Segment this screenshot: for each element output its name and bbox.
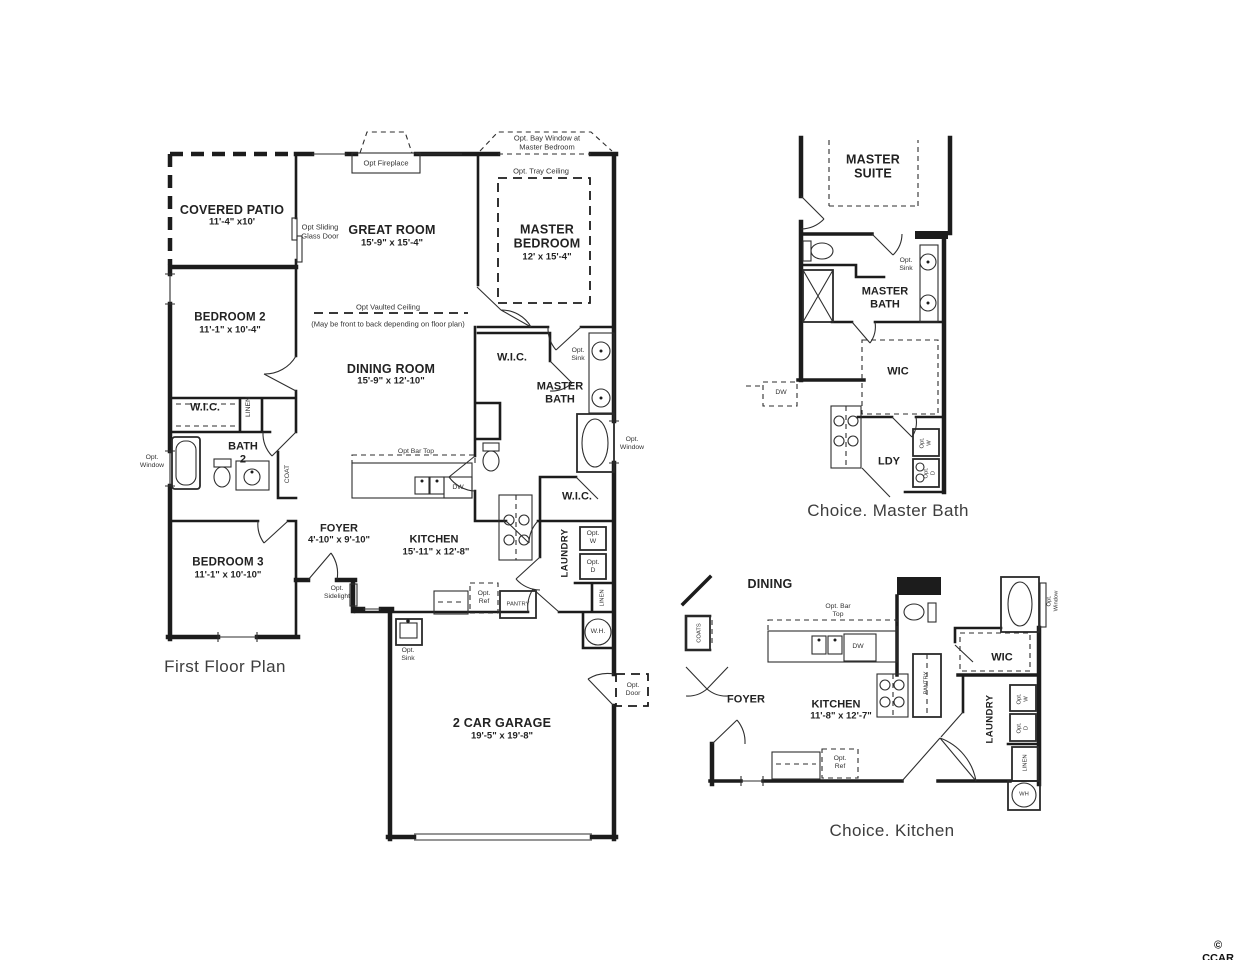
pantry-label: PANTRY <box>507 602 530 609</box>
dims-great-room: 15'-9" x 15'-4" <box>361 239 423 250</box>
counter-choice-k <box>768 620 897 662</box>
opt-fireplace-label: Opt Fireplace <box>363 160 408 169</box>
toilet-choice-mb <box>803 241 833 261</box>
room-label-wic-master2: W.I.C. <box>562 491 592 504</box>
bathtub-bath2 <box>172 437 200 489</box>
dw-label-ck: DW <box>852 643 863 651</box>
bay-window-note: Opt. Bay Window at Master Bedroom <box>514 134 580 151</box>
linen-laundry-label: LINEN <box>600 589 607 606</box>
dims-garage: 19'-5" x 19'-8" <box>471 732 533 743</box>
opt-sink-label-bath: Opt. Sink <box>571 347 584 363</box>
dw-label: DW <box>452 484 463 492</box>
laundry-label-ck: LAUNDRY <box>986 695 997 744</box>
vaulted-note: (May be front to back depending on floor… <box>311 321 464 330</box>
dims-bedroom-2: 11'-1" x 10'-4" <box>199 326 261 337</box>
stove-choice-k <box>877 674 908 717</box>
opt-bar-top-label-ck: Opt. Bar Top <box>825 603 850 619</box>
room-label-kitchen-ck: KITCHEN <box>812 699 861 712</box>
opt-window-label-master: Opt. Window <box>620 436 644 452</box>
cabinet-choice-k <box>772 752 820 779</box>
room-label-wic-ck: WIC <box>991 652 1012 665</box>
room-label-wic-cmb: WIC <box>887 366 908 379</box>
room-label-bath-2: BATH 2 <box>228 440 258 465</box>
linen-hall-label: LINEN <box>245 397 253 417</box>
stove <box>499 495 532 560</box>
room-label-dining-ck: DINING <box>748 577 793 591</box>
cabinet <box>434 591 468 614</box>
water-heater-label-ck: WH <box>1019 792 1029 799</box>
coats-label: COATS <box>697 623 704 643</box>
opt-washer-label-cmb: Opt. W <box>919 438 932 449</box>
room-label-dining-room: DINING ROOM <box>347 362 435 376</box>
room-label-foyer: FOYER <box>320 523 358 536</box>
room-label-kitchen: KITCHEN <box>410 534 459 547</box>
opt-dryer-label-cmb: Opt. D <box>923 468 936 479</box>
opt-ref-label: Opt. Ref <box>478 590 491 606</box>
opt-sink-label-garage: Opt. Sink <box>401 647 414 663</box>
opt-sliding-door-label: Opt Sliding Glass Door <box>301 223 339 240</box>
caption-first-floor: First Floor Plan <box>164 657 286 677</box>
bathtub-choice-k <box>1001 577 1039 632</box>
opt-ref-label-ck: Opt. Ref <box>834 755 847 771</box>
room-label-master-bath-cmb: MASTER BATH <box>862 285 908 310</box>
sink-choice-k <box>812 636 842 654</box>
opt-tray-ceiling-label: Opt. Tray Ceiling <box>513 168 569 177</box>
opt-washer-label: Opt. W <box>587 530 600 546</box>
water-heater-label: W.H. <box>591 628 606 636</box>
dims-covered-patio: 11'-4" x10' <box>209 218 255 229</box>
dims-master-bedroom: 12' x 15'-4" <box>522 253 571 264</box>
opt-dryer-label: Opt. D <box>587 559 600 575</box>
toilet-choice-k <box>904 603 936 622</box>
opt-vaulted-label: Opt Vaulted Ceiling <box>356 304 420 313</box>
floor-plan-drawing <box>0 0 1242 960</box>
window-choice-k <box>1040 583 1046 627</box>
opt-washer-label-ck: Opt. W <box>1016 694 1029 705</box>
linen-label-ck: LINEN <box>1023 754 1030 771</box>
caption-choice-kitchen: Choice. Kitchen <box>829 821 954 841</box>
stove-choice-mb <box>831 406 861 468</box>
dims-foyer: 4'-10" x 9'-10" <box>308 536 370 547</box>
room-label-ldy: LDY <box>878 456 900 469</box>
opt-sidelight-label: Opt. Sidelight <box>324 585 350 601</box>
room-label-wic-bed2: W.I.C. <box>190 402 220 415</box>
room-label-garage: 2 CAR GARAGE <box>453 716 551 730</box>
room-label-foyer-ck: FOYER <box>727 694 765 707</box>
room-label-bedroom-2: BEDROOM 2 <box>194 311 265 324</box>
toilet-master-bath <box>483 443 499 471</box>
choice-master-bath-doors <box>801 196 916 497</box>
opt-window-label-bath2: Opt. Window <box>140 454 164 470</box>
dishwasher-choice-mb <box>746 382 797 406</box>
room-label-bedroom-3: BEDROOM 3 <box>192 556 263 569</box>
pantry-label-ck: PANTRY <box>924 672 931 695</box>
kitchen-sink <box>415 477 444 494</box>
room-label-master-bedroom: MASTER BEDROOM <box>514 223 581 252</box>
room-label-great-room: GREAT ROOM <box>348 223 435 237</box>
opt-dryer-label-ck: Opt. D <box>1016 723 1029 734</box>
garage-sink <box>396 619 422 645</box>
coat-label: COAT <box>284 465 292 483</box>
dw-label-cmb: DW <box>775 389 786 397</box>
room-label-master-bath: MASTER BATH <box>537 380 583 405</box>
opt-sink-label-cmb: Opt. Sink <box>899 257 912 273</box>
vanity-master-bath <box>589 333 614 413</box>
room-label-master-suite: MASTER SUITE <box>846 153 900 182</box>
floor-plan-document: Opt. Bay Window at Master Bedroom Opt Fi… <box>0 0 1242 960</box>
shower-choice-mb <box>803 270 833 322</box>
room-label-wic-master: W.I.C. <box>497 352 527 365</box>
caption-choice-master-bath: Choice. Master Bath <box>807 501 969 521</box>
opt-window-label-ck: Opt. Window <box>1046 591 1059 612</box>
dims-bedroom-3: 11'-1" x 10'-10" <box>195 571 262 582</box>
dims-dining-room: 15'-9" x 12'-10" <box>357 377 424 388</box>
opt-bar-top-label: Opt Bar Top <box>398 448 434 456</box>
opt-door-label: Opt. Door <box>626 682 641 698</box>
room-label-covered-patio: COVERED PATIO <box>180 203 284 217</box>
laundry-label: LAUNDRY <box>561 529 572 578</box>
dims-kitchen-ck: 11'-8" x 12'-7" <box>810 712 872 723</box>
choice-kitchen-walls <box>683 577 1039 786</box>
vanity-choice-mb <box>920 245 938 322</box>
first-floor-doors <box>258 287 614 706</box>
dims-kitchen: 15'-11" x 12'-8" <box>403 548 470 559</box>
watermark-ccar: © CCAR <box>1202 939 1234 960</box>
bathtub-master <box>577 414 614 472</box>
